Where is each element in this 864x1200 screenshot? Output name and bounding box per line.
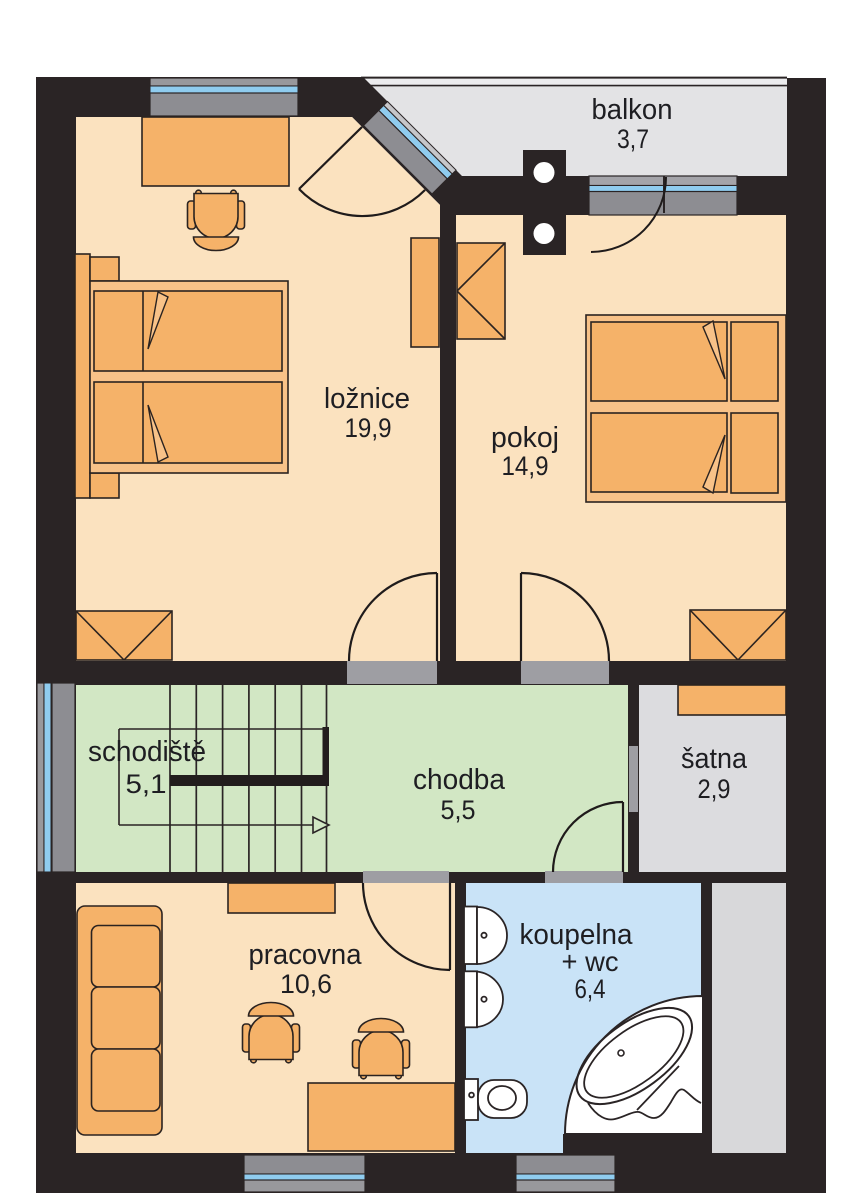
svg-text:balkon: balkon (592, 94, 673, 126)
svg-text:6,4: 6,4 (575, 974, 606, 1004)
svg-text:+ wc: + wc (562, 946, 619, 977)
svg-text:10,6: 10,6 (280, 969, 332, 999)
svg-text:5,5: 5,5 (441, 795, 476, 825)
svg-text:19,9: 19,9 (345, 413, 392, 443)
svg-text:3,7: 3,7 (617, 124, 649, 154)
svg-text:schodiště: schodiště (88, 736, 206, 768)
svg-text:šatna: šatna (681, 743, 748, 775)
svg-text:ložnice: ložnice (324, 383, 410, 415)
svg-text:pracovna: pracovna (249, 939, 363, 971)
svg-text:2,9: 2,9 (698, 774, 731, 804)
svg-text:5,1: 5,1 (126, 769, 167, 799)
svg-text:14,9: 14,9 (502, 451, 549, 481)
svg-text:pokoj: pokoj (491, 422, 559, 454)
svg-text:chodba: chodba (413, 764, 506, 796)
